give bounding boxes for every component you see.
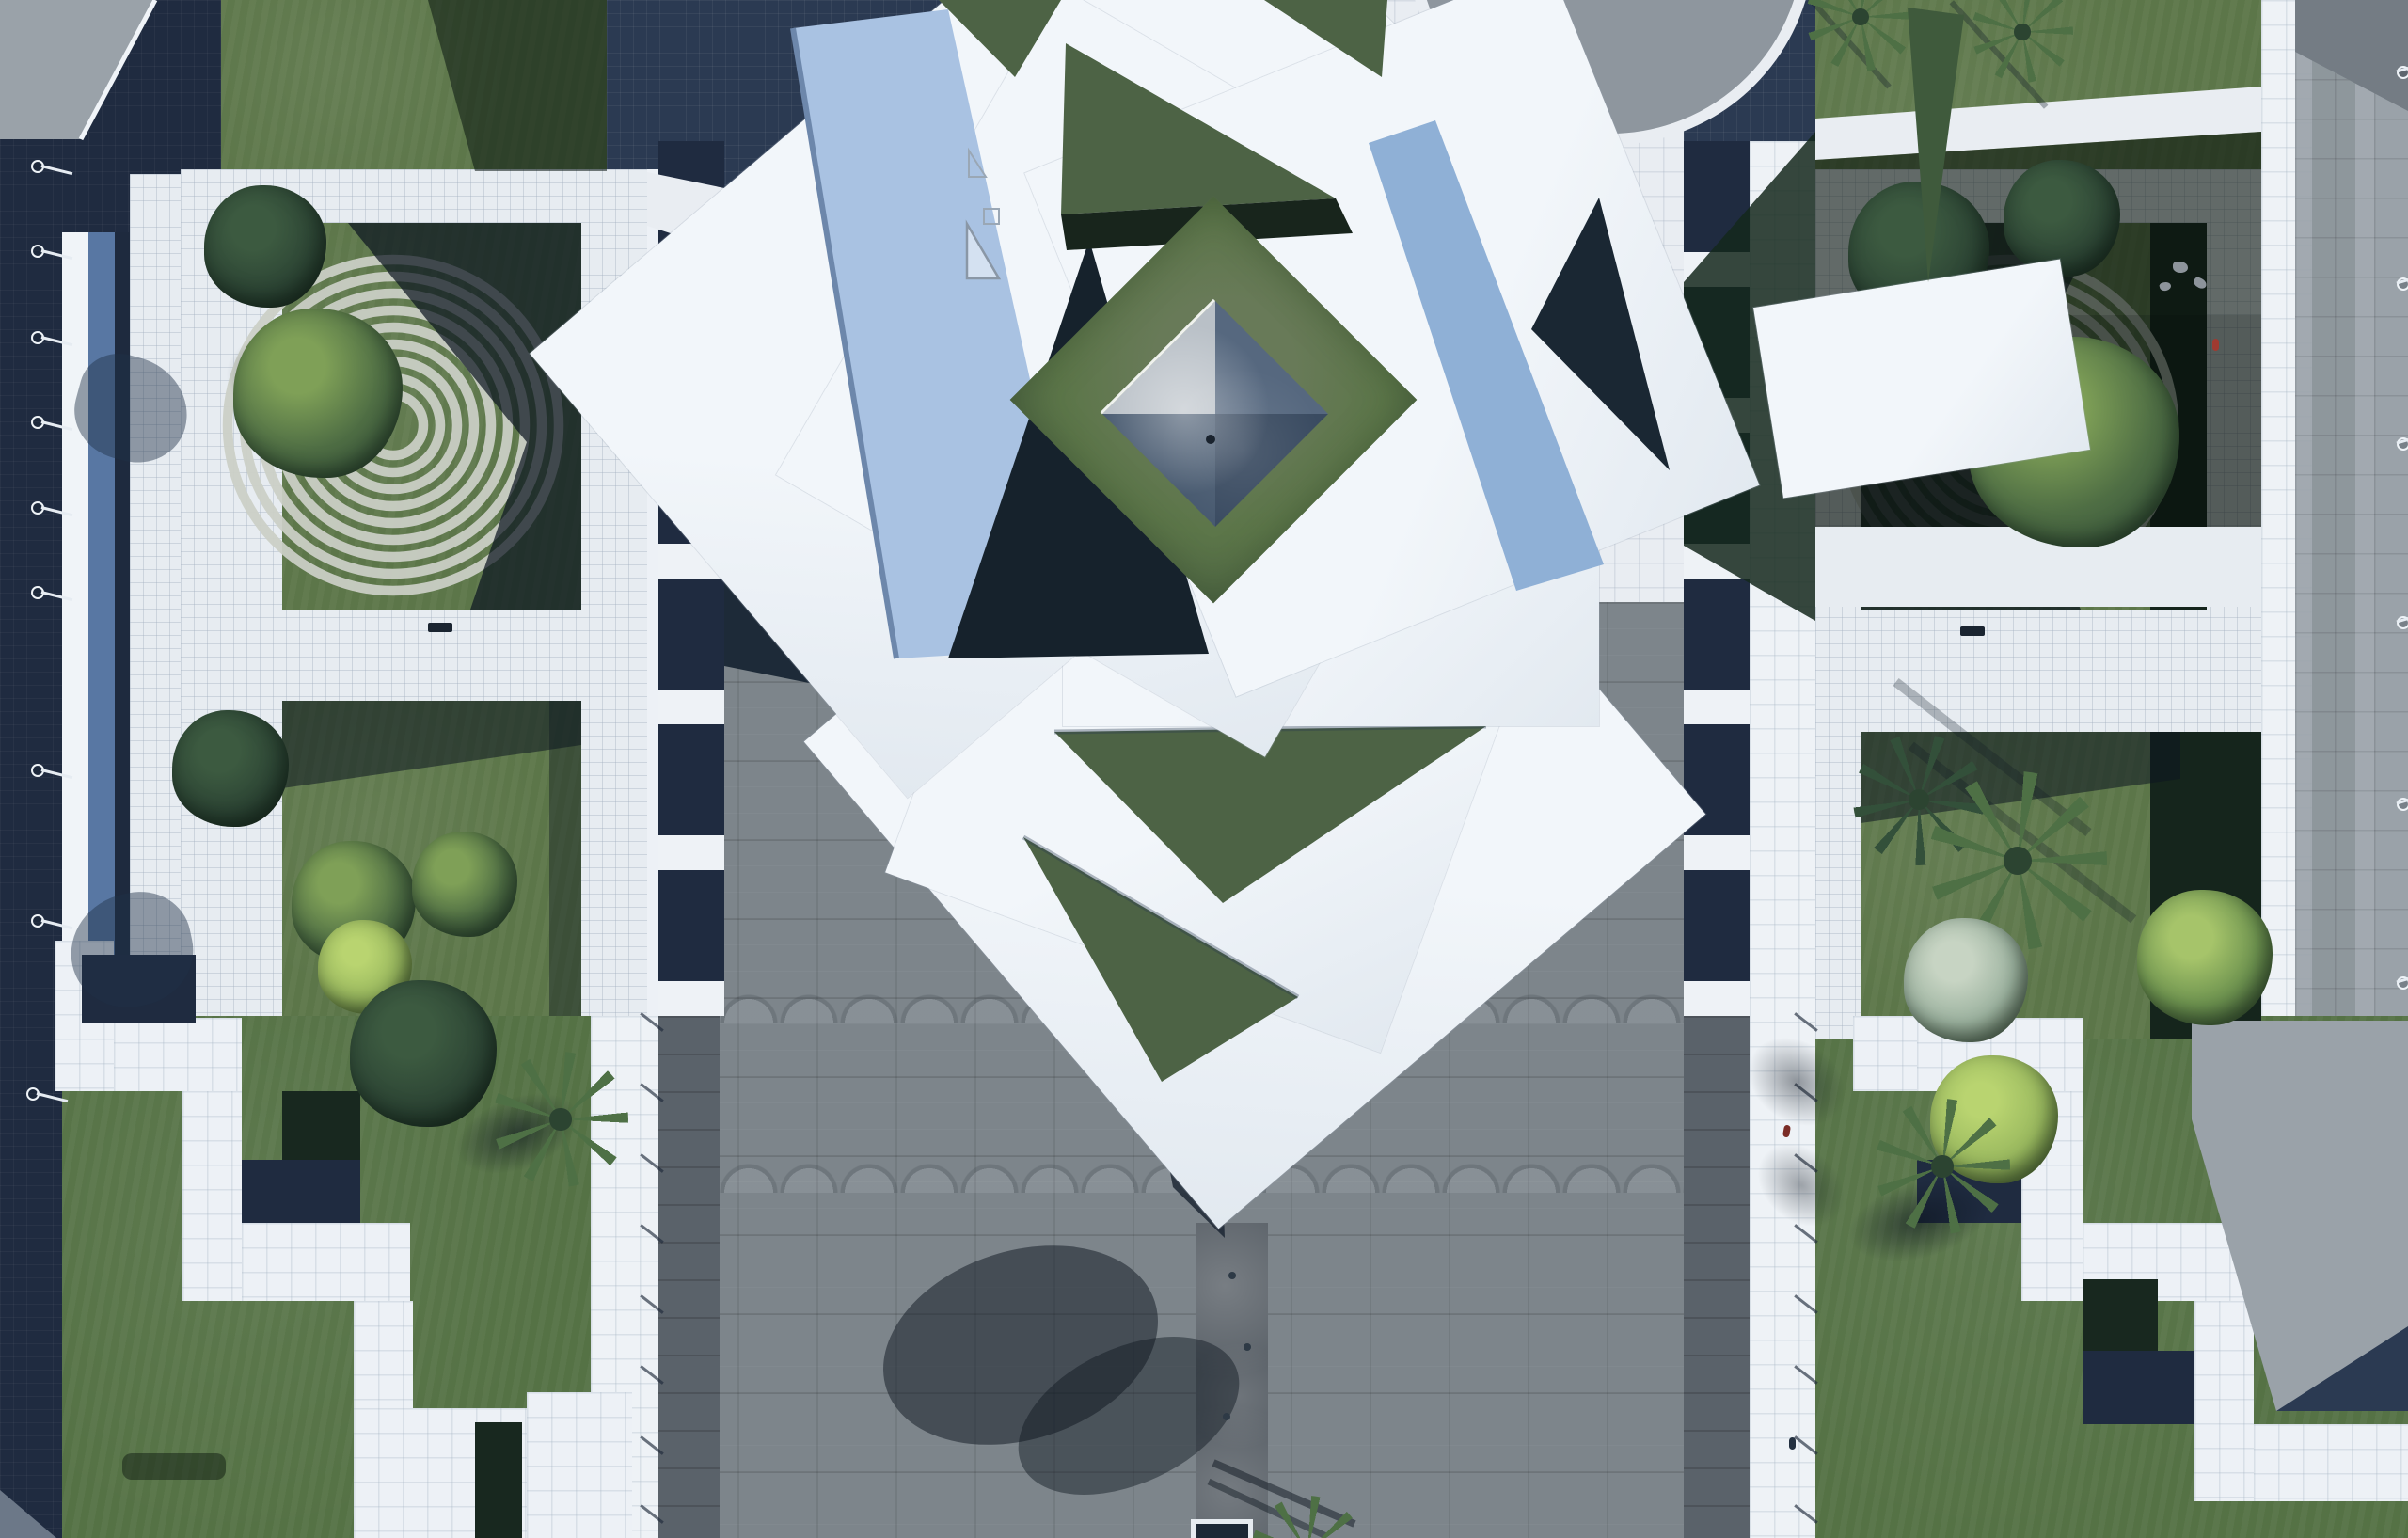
streetlight-right-1 — [2397, 66, 2408, 79]
roof-hatch-triangle-small — [969, 151, 986, 177]
streetlight-right-4 — [2397, 616, 2408, 629]
streetlight-left-4 — [31, 416, 44, 429]
roof-hatch-triangle — [967, 224, 999, 278]
roof-hatch-glyphs — [0, 0, 2408, 1538]
streetlight-right-5 — [2397, 798, 2408, 811]
streetlight-right-3 — [2397, 437, 2408, 451]
streetlight-left-7 — [31, 764, 44, 777]
streetlight-left-3 — [31, 331, 44, 344]
streetlight-left-5 — [31, 501, 44, 515]
person-channel-1 — [1228, 1272, 1236, 1279]
person-walkway-2 — [1789, 1437, 1796, 1450]
streetlight-left-6 — [31, 586, 44, 599]
streetlight-left-9 — [26, 1087, 40, 1101]
person-channel-3 — [1223, 1413, 1230, 1420]
person-channel-2 — [1244, 1343, 1251, 1351]
streetlight-right-6 — [2397, 976, 2408, 990]
aerial-render-canvas — [0, 0, 2408, 1538]
streetlight-left-8 — [31, 914, 44, 928]
streetlight-left-1 — [31, 160, 44, 173]
streetlight-right-2 — [2397, 277, 2408, 291]
roof-hatch-square — [984, 209, 999, 224]
streetlight-left-2 — [31, 245, 44, 258]
